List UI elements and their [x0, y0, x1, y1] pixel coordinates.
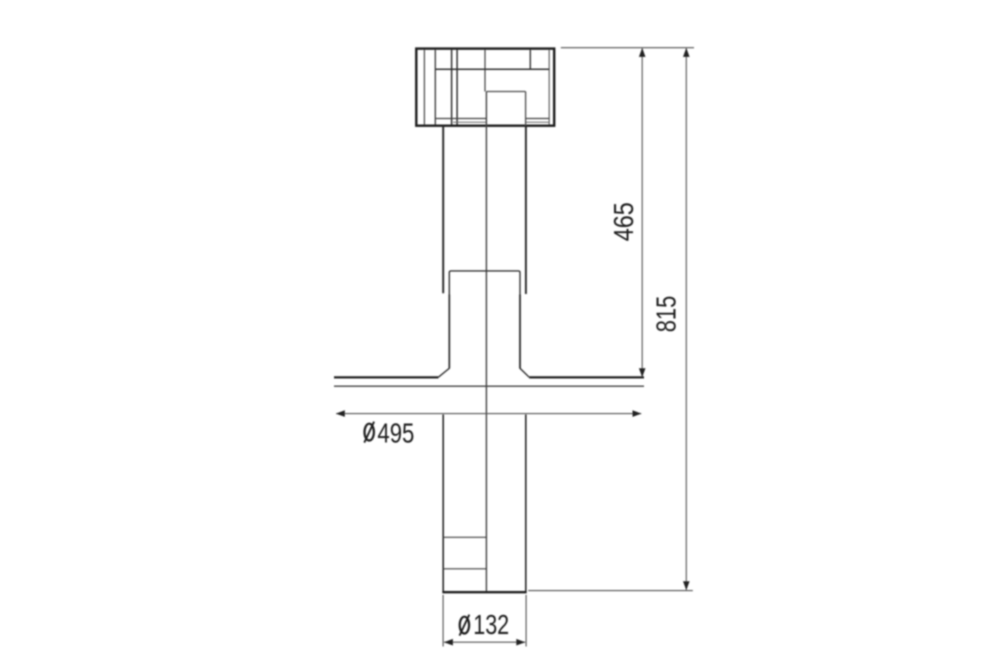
- svg-text:495: 495: [377, 417, 414, 448]
- svg-text:465: 465: [608, 202, 639, 241]
- svg-text:132: 132: [473, 609, 509, 640]
- svg-text:815: 815: [651, 296, 682, 333]
